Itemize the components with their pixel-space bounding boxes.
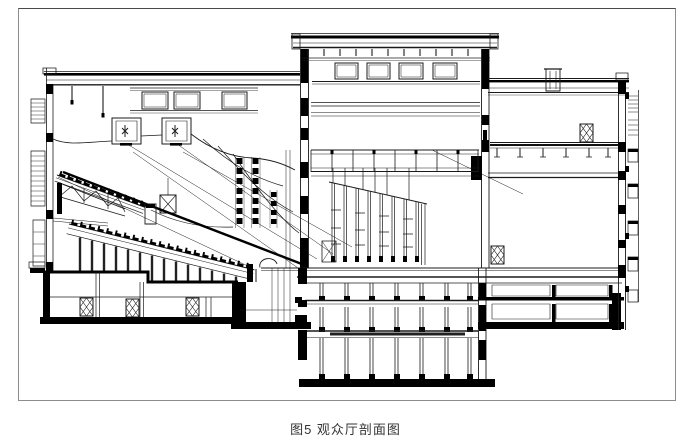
figure-frame: [18, 8, 676, 401]
auditorium-roof: [43, 68, 300, 118]
section-drawing: [19, 9, 673, 398]
proscenium-wall: [286, 49, 309, 268]
backstage-block: [478, 69, 629, 330]
speaker-cluster: [160, 178, 176, 213]
auditorium-clerestory-windows: [130, 88, 258, 113]
right-exterior-wall: [616, 73, 639, 330]
proscenium-light-slots: [236, 157, 278, 228]
stage-floor: [261, 268, 621, 277]
sightlines: [58, 144, 523, 268]
left-exterior-wall: [29, 68, 108, 273]
figure-caption: 图5 观众厅剖面图: [0, 419, 691, 438]
house-basement: [40, 272, 240, 324]
projection-booths: [112, 118, 191, 146]
gallery-walkway: [311, 150, 479, 176]
document-page: 图5 观众厅剖面图: [0, 0, 691, 440]
scenery-battens: [322, 168, 427, 265]
